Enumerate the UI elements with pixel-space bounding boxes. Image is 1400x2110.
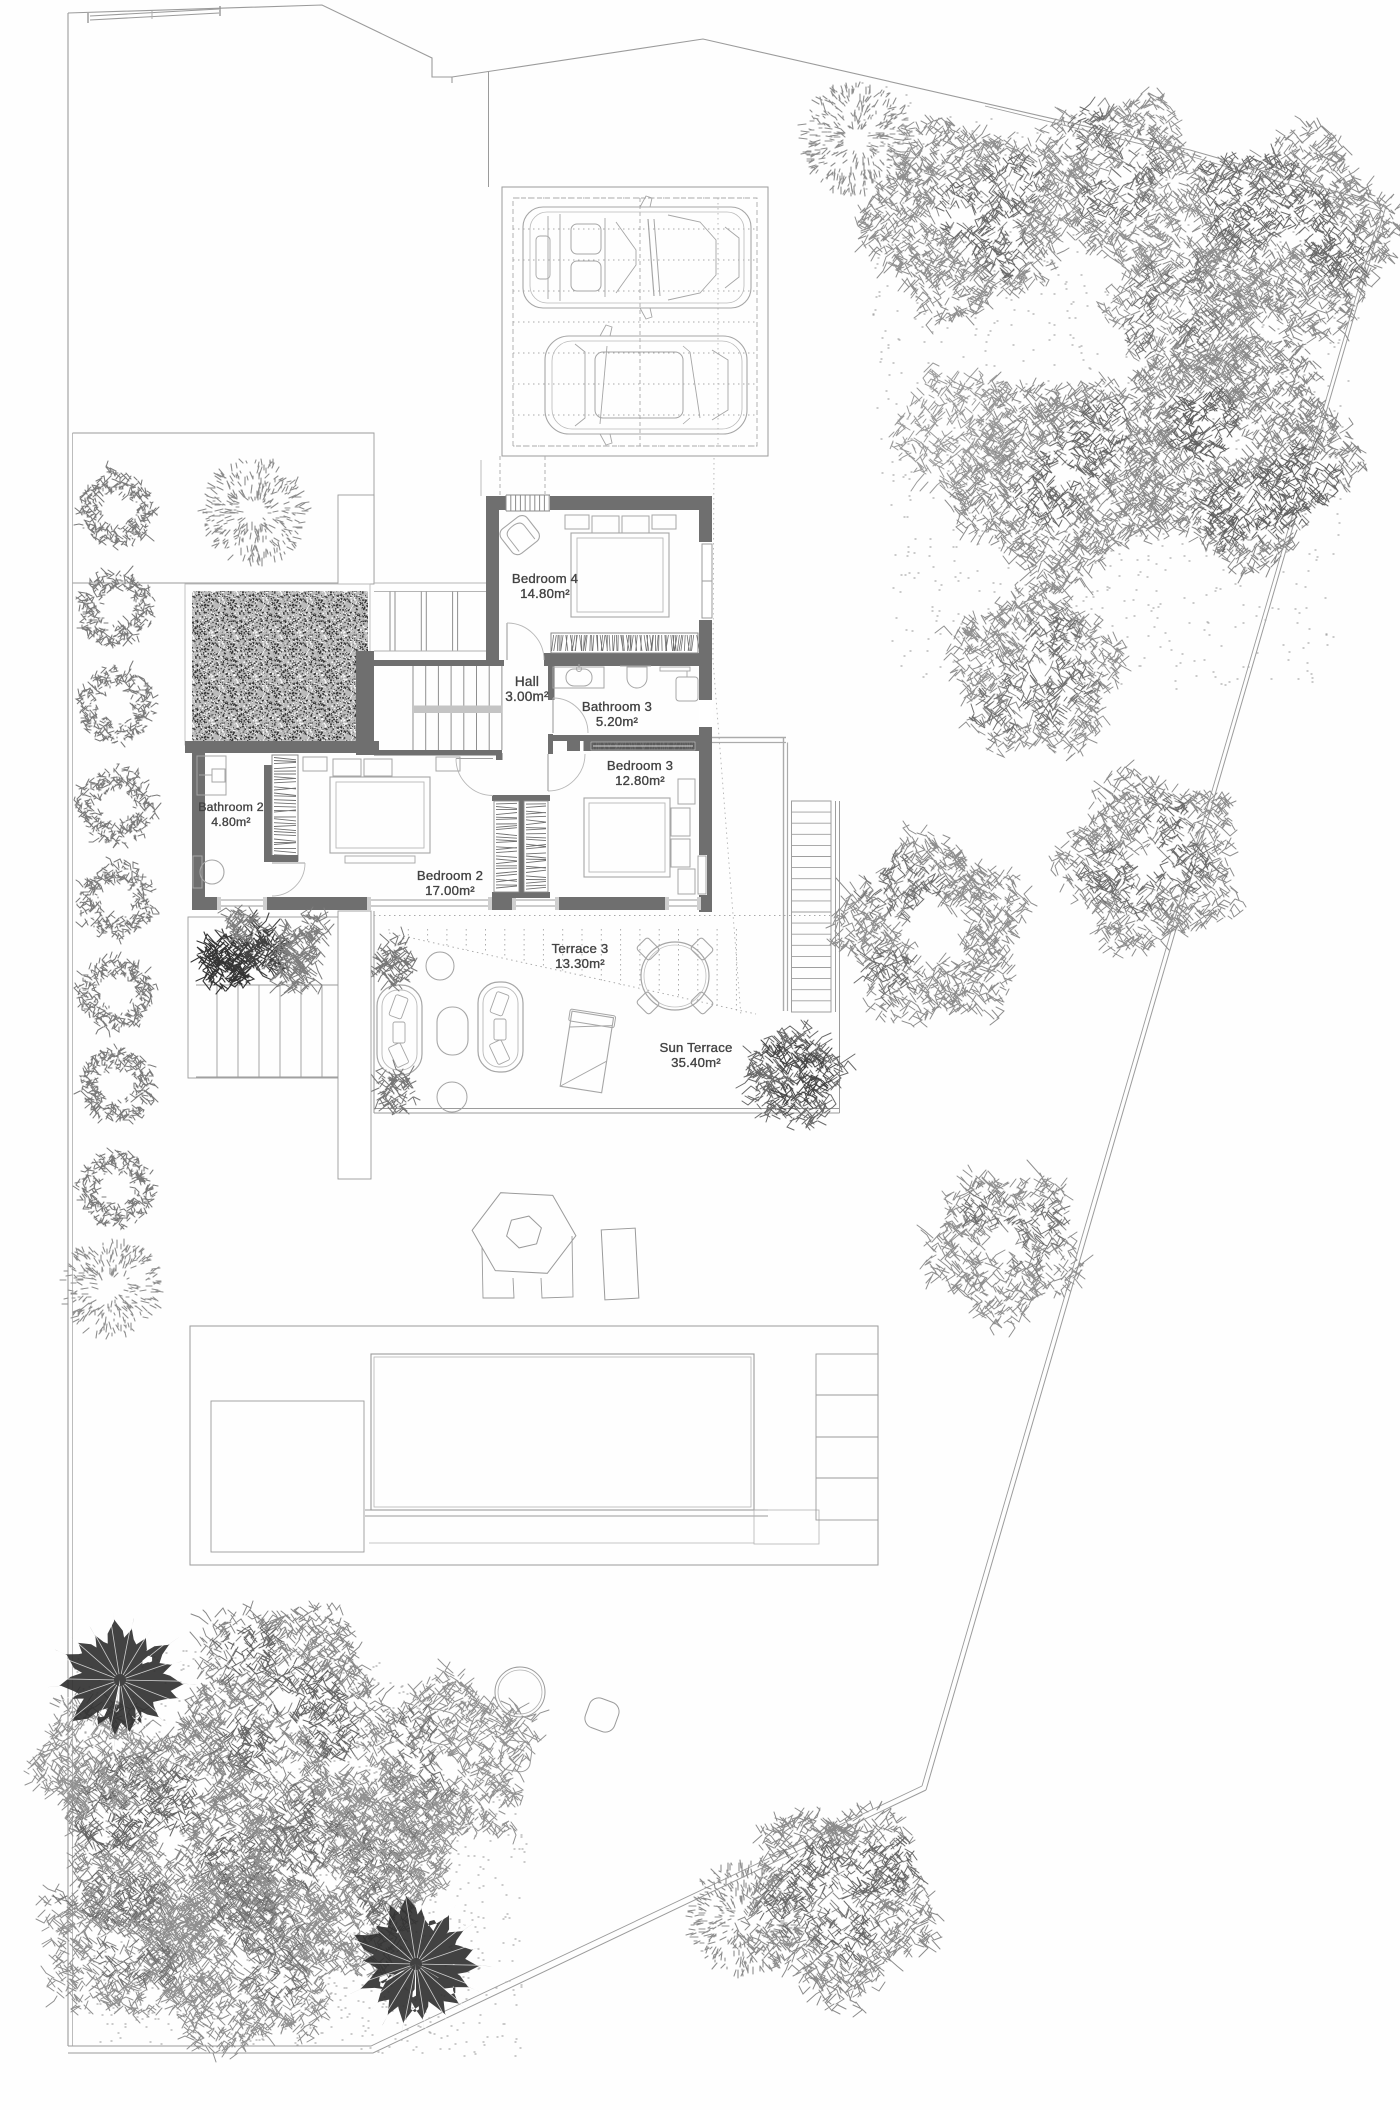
svg-text:Terrace 3: Terrace 3	[552, 941, 609, 956]
svg-text:Bathroom 3: Bathroom 3	[582, 699, 652, 714]
svg-text:35.40m²: 35.40m²	[671, 1055, 721, 1070]
svg-text:5.20m²: 5.20m²	[596, 714, 639, 729]
svg-text:3.00m²: 3.00m²	[505, 689, 549, 704]
svg-text:Sun Terrace: Sun Terrace	[659, 1040, 732, 1055]
svg-text:4.80m²: 4.80m²	[211, 815, 250, 829]
svg-text:17.00m²: 17.00m²	[425, 883, 475, 898]
svg-text:Bedroom 4: Bedroom 4	[512, 571, 578, 586]
svg-text:Hall: Hall	[515, 674, 539, 689]
svg-text:13.30m²: 13.30m²	[555, 956, 605, 971]
svg-text:Bedroom 2: Bedroom 2	[417, 868, 483, 883]
svg-text:Bathroom 2: Bathroom 2	[198, 800, 264, 814]
svg-text:Bedroom 3: Bedroom 3	[607, 758, 673, 773]
svg-text:14.80m²: 14.80m²	[520, 586, 570, 601]
svg-text:12.80m²: 12.80m²	[615, 773, 665, 788]
